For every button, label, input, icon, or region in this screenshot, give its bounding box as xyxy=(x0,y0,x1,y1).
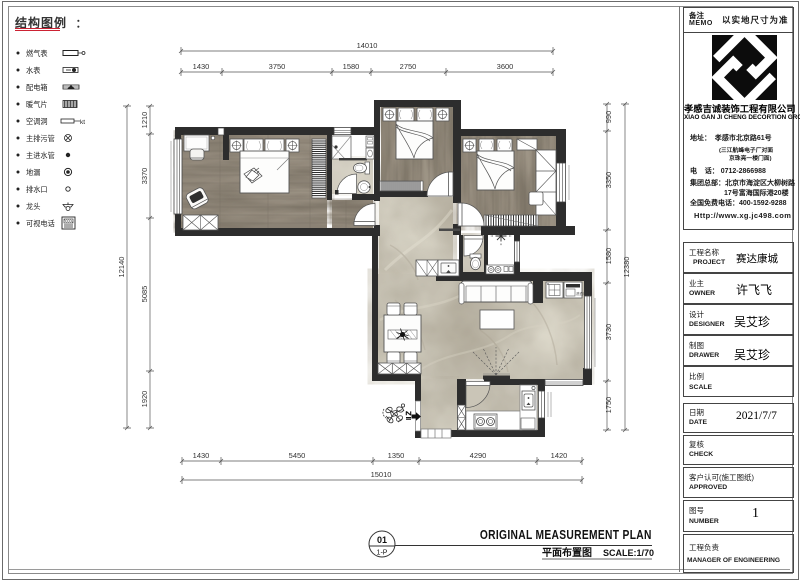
svg-text:3370: 3370 xyxy=(140,168,149,185)
svg-text:3750: 3750 xyxy=(269,62,286,71)
svg-text:洗衣机: 洗衣机 xyxy=(576,291,587,296)
svg-text:15010: 15010 xyxy=(371,470,392,479)
svg-text:3730: 3730 xyxy=(604,324,613,341)
svg-text:12380: 12380 xyxy=(622,257,631,278)
svg-text:1430: 1430 xyxy=(193,62,210,71)
svg-text:ORIGINAL MEASUREMENT PLAN: ORIGINAL MEASUREMENT PLAN xyxy=(480,529,652,542)
svg-text:4290: 4290 xyxy=(470,451,487,460)
svg-text:5085: 5085 xyxy=(140,286,149,303)
svg-text:1210: 1210 xyxy=(140,112,149,129)
svg-text:990: 990 xyxy=(604,111,613,124)
svg-text:平面布置图: 平面布置图 xyxy=(542,546,592,559)
svg-text:2750: 2750 xyxy=(400,62,417,71)
svg-text:14010: 14010 xyxy=(357,41,378,50)
svg-text:01: 01 xyxy=(377,535,387,545)
svg-text:3350: 3350 xyxy=(604,172,613,189)
svg-text:1430: 1430 xyxy=(193,451,210,460)
svg-text:1920: 1920 xyxy=(140,391,149,408)
svg-text:12140: 12140 xyxy=(117,257,126,278)
svg-text:5450: 5450 xyxy=(289,451,306,460)
svg-text:1580: 1580 xyxy=(343,62,360,71)
svg-text:1580: 1580 xyxy=(604,248,613,265)
svg-text:3600: 3600 xyxy=(497,62,514,71)
svg-text:1350: 1350 xyxy=(388,451,405,460)
svg-text:1-P: 1-P xyxy=(377,550,388,557)
svg-text:SCALE:1/70: SCALE:1/70 xyxy=(603,548,654,558)
svg-text:1750: 1750 xyxy=(604,397,613,414)
svg-text:1420: 1420 xyxy=(551,451,568,460)
